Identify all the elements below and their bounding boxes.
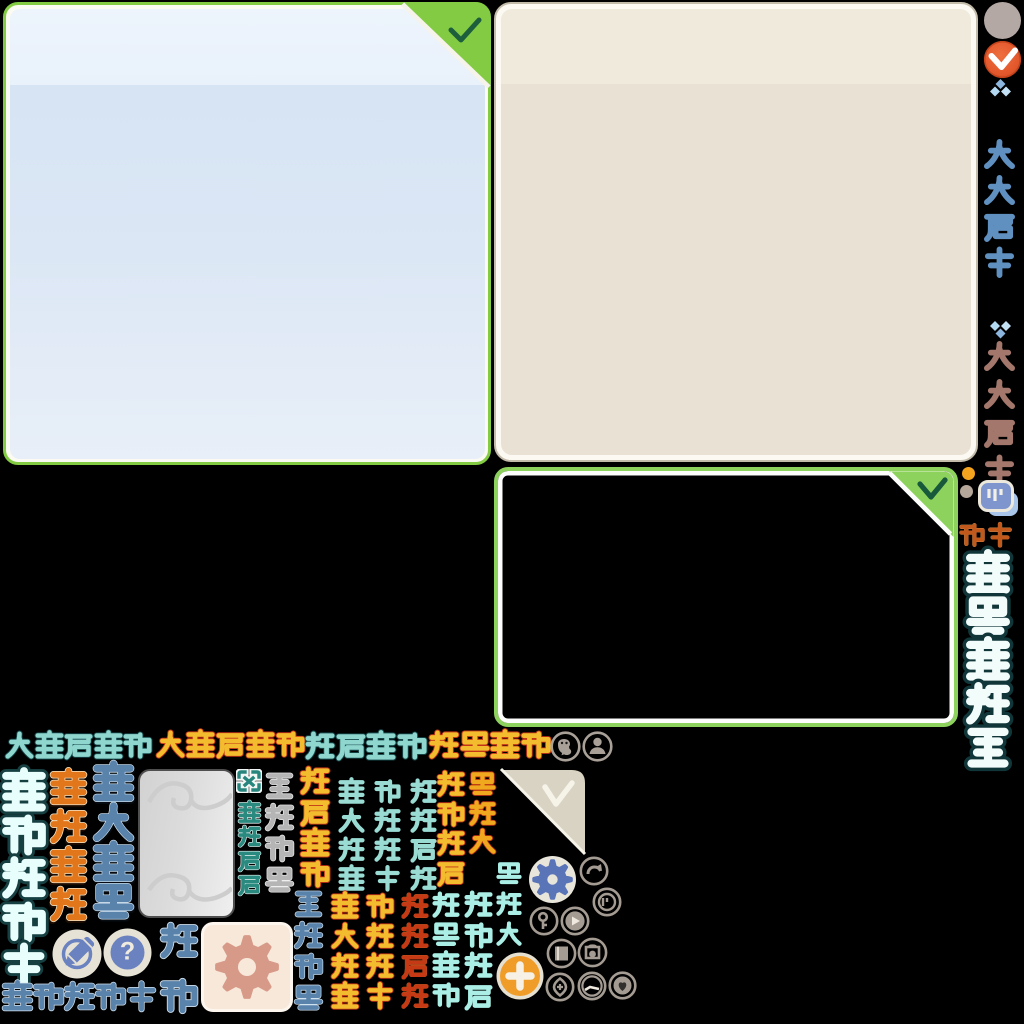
svg-text:?: ? bbox=[120, 938, 135, 966]
